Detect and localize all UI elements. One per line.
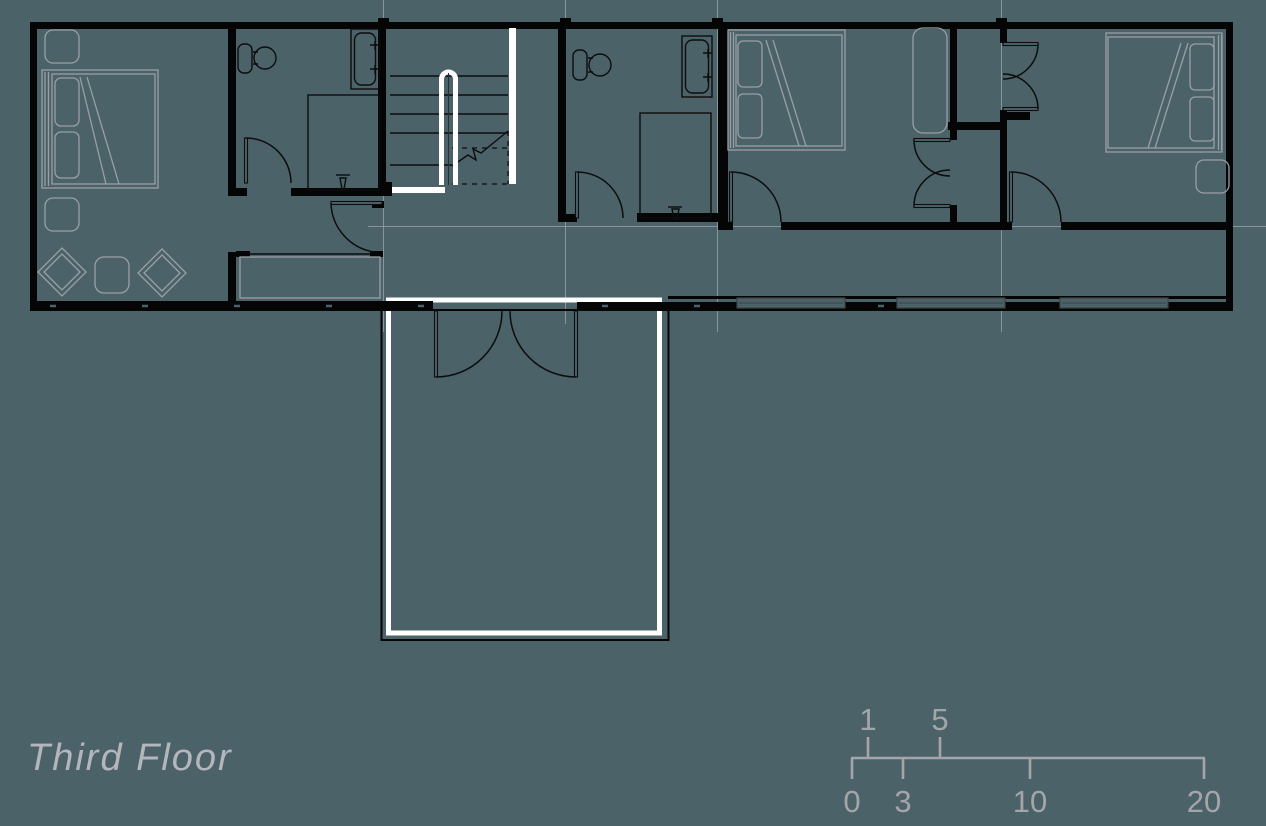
pillow xyxy=(1190,44,1214,90)
bedroom-1-furniture xyxy=(38,30,186,297)
bathroom-2 xyxy=(573,36,712,219)
stair-glass-wall xyxy=(509,28,516,184)
bathroom-2-door xyxy=(576,172,624,218)
floor-plan-canvas: 1 5 0 3 10 20 Third Floor xyxy=(0,0,1266,826)
nightstand xyxy=(45,198,79,231)
scale-label: 10 xyxy=(1013,784,1047,819)
toilet xyxy=(238,44,276,73)
bedroom-3-door xyxy=(1010,172,1062,222)
wardrobe xyxy=(913,28,947,133)
stair-break-line xyxy=(452,131,508,166)
scale-label: 1 xyxy=(859,702,876,737)
bedroom-2-door xyxy=(730,172,782,222)
closet-double-doors xyxy=(1003,43,1038,111)
balcony-french-doors xyxy=(435,311,578,377)
scale-label: 3 xyxy=(894,784,911,819)
exterior-walls xyxy=(30,18,1233,311)
nightstand xyxy=(1196,160,1229,193)
pillow xyxy=(738,41,762,87)
shower-drain xyxy=(340,178,346,189)
closet-double-doors xyxy=(914,139,950,208)
vanity-sink xyxy=(351,29,379,89)
structural-grid-lines xyxy=(368,0,1266,332)
stair-railings xyxy=(392,28,516,193)
shower xyxy=(640,113,711,219)
closet-casework xyxy=(240,257,380,298)
scale-ticks-up xyxy=(868,737,940,758)
pillow xyxy=(1190,97,1214,141)
bathroom-1 xyxy=(238,29,379,190)
nightstand xyxy=(45,30,79,63)
scale-bar: 1 5 0 3 10 20 xyxy=(843,702,1221,819)
pillow xyxy=(738,94,762,138)
blanket-fold xyxy=(1148,43,1188,148)
bed-double xyxy=(42,70,158,188)
bedroom-3-furniture xyxy=(1003,33,1229,222)
floor-plan-drawing: 1 5 0 3 10 20 xyxy=(0,0,1266,826)
balcony-railing xyxy=(389,300,660,633)
page-title: Third Floor xyxy=(27,737,233,780)
blanket-fold xyxy=(80,77,119,184)
pillow xyxy=(55,78,79,126)
chair xyxy=(38,248,86,296)
landing-railing xyxy=(392,187,445,193)
shower xyxy=(308,95,379,190)
bedroom-2-furniture xyxy=(728,28,950,222)
bathroom-1-door xyxy=(245,138,292,183)
bed-double xyxy=(728,30,845,150)
scale-ticks-down xyxy=(852,758,1204,779)
bed-double xyxy=(1106,33,1222,152)
scale-label: 0 xyxy=(843,784,860,819)
vanity-sink xyxy=(682,36,712,97)
scale-label: 20 xyxy=(1187,784,1221,819)
blanket-fold xyxy=(766,40,806,146)
chair xyxy=(138,249,186,297)
balcony xyxy=(382,300,669,640)
toilet xyxy=(573,50,611,80)
pillow xyxy=(55,132,79,178)
scale-label: 5 xyxy=(931,702,948,737)
side-table xyxy=(95,257,129,293)
